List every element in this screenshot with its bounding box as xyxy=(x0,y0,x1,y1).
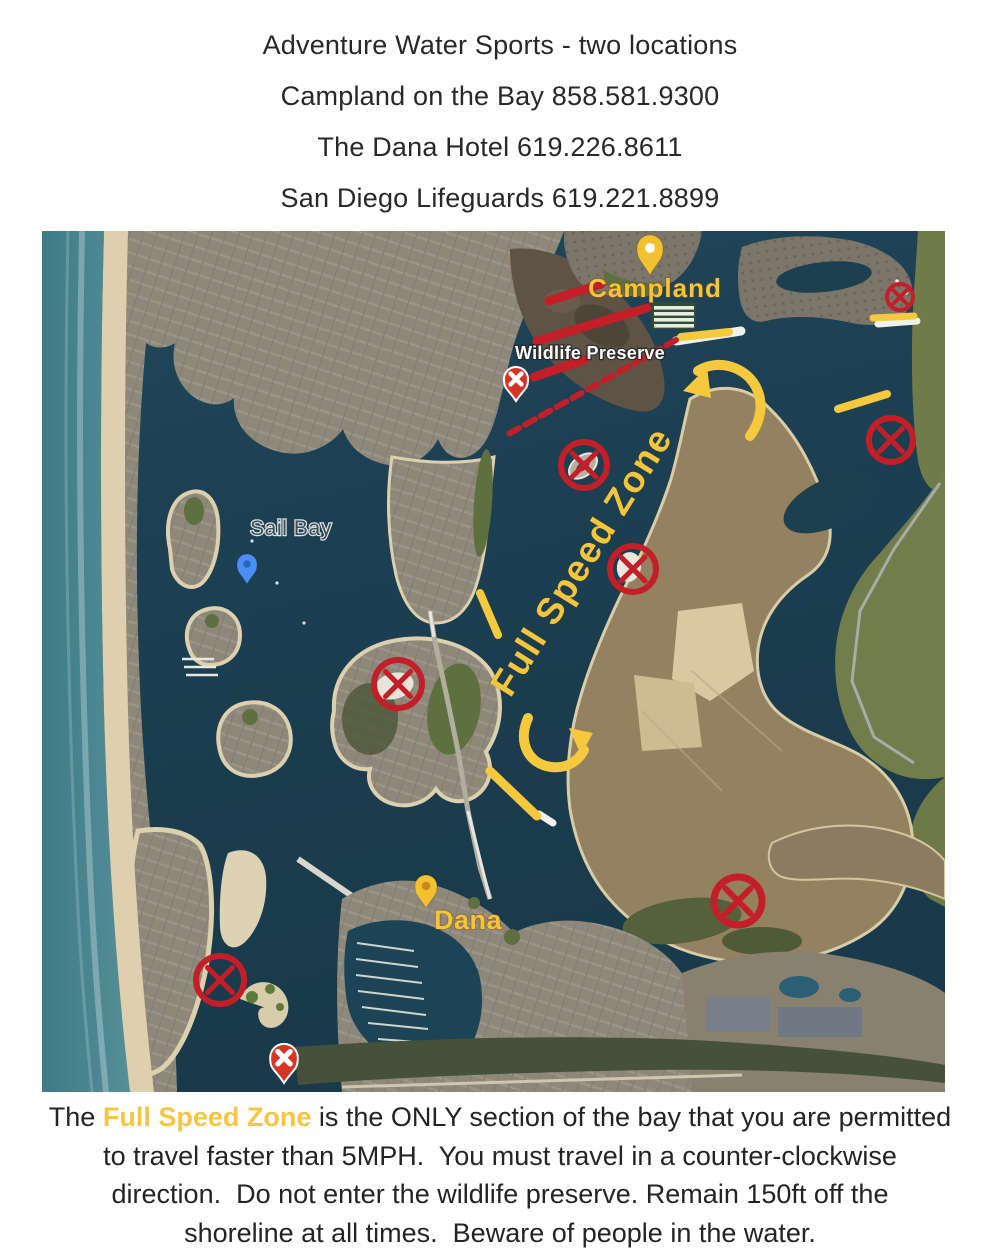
el-carmel-park xyxy=(205,614,219,628)
campland-pin-dot xyxy=(645,243,655,253)
santa-clara-park xyxy=(184,497,204,525)
rules-line-3: direction. Do not enter the wildlife pre… xyxy=(0,1175,1000,1214)
map-svg: CamplandWildlife PreserveSail BayFull Sp… xyxy=(42,231,945,1092)
campland-phone-line: Campland on the Bay 858.581.9300 xyxy=(0,71,1000,122)
dana-hotel-phone-line: The Dana Hotel 619.226.8611 xyxy=(0,122,1000,173)
speed-zone-boundary-line xyxy=(873,316,914,318)
campland-docks xyxy=(651,302,696,329)
flyer-page: Adventure Water Sports - two locations C… xyxy=(0,0,1000,1250)
rules-line-4: shoreline at all times. Beware of people… xyxy=(0,1214,1000,1250)
sail-bay-pin-dot xyxy=(243,560,251,568)
parking-lot xyxy=(706,997,770,1031)
fiesta-marsh xyxy=(722,927,802,955)
hook-island-trees xyxy=(276,1003,284,1011)
dana-pin-dot xyxy=(422,882,430,890)
full-speed-zone-highlight: Full Speed Zone xyxy=(103,1102,312,1132)
rules-line-1-post: is the ONLY section of the bay that you … xyxy=(311,1102,951,1132)
flyer-title: Adventure Water Sports - two locations xyxy=(0,20,1000,71)
dana-label: Dana xyxy=(434,905,503,935)
header-text-block: Adventure Water Sports - two locations C… xyxy=(0,20,1000,224)
jetty-line xyxy=(878,321,917,324)
rules-text-block: The Full Speed Zone is the ONLY section … xyxy=(0,1098,1000,1250)
parking-lot xyxy=(778,1007,862,1037)
seaworld-pool xyxy=(839,988,861,1002)
speed-zone-boundary-line xyxy=(681,332,729,337)
hook-island-trees xyxy=(265,984,275,994)
bahia-park xyxy=(242,709,258,725)
lifeguards-phone-line: San Diego Lifeguards 619.221.8899 xyxy=(0,173,1000,224)
mission-bay-satellite-map: CamplandWildlife PreserveSail BayFull Sp… xyxy=(42,231,945,1092)
hook-island-trees xyxy=(246,991,258,1003)
rules-line-1-pre: The xyxy=(49,1102,103,1132)
campland-label: Campland xyxy=(588,273,722,303)
dana-green xyxy=(504,929,520,945)
map-base-imagery xyxy=(42,231,945,1092)
wildlife-preserve-label: Wildlife Preserve xyxy=(515,343,665,363)
rules-line-2: to travel faster than 5MPH. You must tra… xyxy=(0,1137,1000,1176)
sail-bay-label: Sail Bay xyxy=(250,517,332,540)
rules-line-1: The Full Speed Zone is the ONLY section … xyxy=(0,1098,1000,1137)
seaworld-lagoon xyxy=(779,976,819,998)
